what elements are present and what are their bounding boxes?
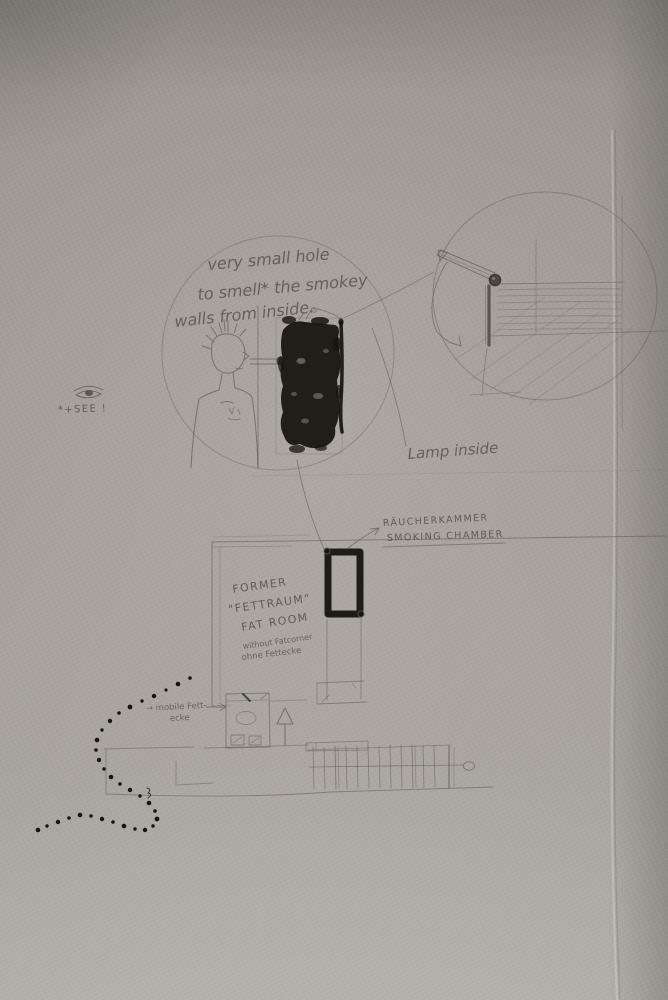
label-underline (382, 543, 505, 547)
fat-room-label-3: FAT ROOM (240, 611, 309, 634)
wall-sketch: very small hole to smell* the smokey wal… (0, 0, 668, 1000)
guide-line (252, 470, 664, 476)
hatch-lines (490, 282, 667, 336)
mobile-fettecke-label-1: → mobile Fett- (146, 701, 207, 714)
see-label: *+SEE ! (58, 403, 108, 416)
construction-lines (455, 196, 632, 428)
lamp-stroke (338, 318, 343, 432)
detail-circle-sketch (432, 192, 667, 428)
chamber-pointer-line (347, 528, 379, 549)
fat-room-outline (212, 542, 231, 706)
see-note: *+SEE ! (58, 386, 108, 416)
person-sketch (191, 320, 258, 468)
note-line-2: to smell* the smokey (197, 270, 369, 304)
smoked-wall-scribble (276, 316, 342, 454)
chamber-label-de: RÄUCHERKAMMER (383, 512, 489, 529)
mobile-fettecke-label-2: ecke (170, 713, 190, 724)
chest-marks (228, 407, 240, 420)
lamp-label: Lamp inside (407, 439, 499, 463)
mobile-arrow (206, 704, 226, 711)
mobile-fettecke-labels: → mobile Fett- ecke (146, 701, 207, 724)
fat-room-labels: FORMER "FETTRAUM" FAT ROOM without Fatco… (228, 575, 314, 663)
chamber-label-en: SMOKING CHAMBER (387, 529, 504, 544)
stair-end-knob (464, 762, 475, 770)
dotted-trail (36, 676, 192, 832)
fat-room-label-1: FORMER (232, 575, 288, 596)
smell-hole-tube (250, 306, 284, 467)
descent-connector (297, 460, 324, 549)
mobile-fettecke-box (226, 693, 270, 748)
chamber-labels: RÄUCHERKAMMER SMOKING CHAMBER (382, 512, 505, 547)
chamber-walls-below (269, 618, 367, 704)
smoking-chamber-plan-rect (324, 548, 364, 617)
wall-photo: very small hole to smell* the smokey wal… (0, 0, 668, 1000)
eye-icon (74, 386, 103, 398)
central-vignette: very small hole to smell* the smokey wal… (162, 236, 434, 470)
floor-plan (36, 528, 666, 832)
stairs (306, 741, 475, 789)
north-arrow-icon (277, 708, 293, 745)
wall-seam (612, 130, 620, 1000)
